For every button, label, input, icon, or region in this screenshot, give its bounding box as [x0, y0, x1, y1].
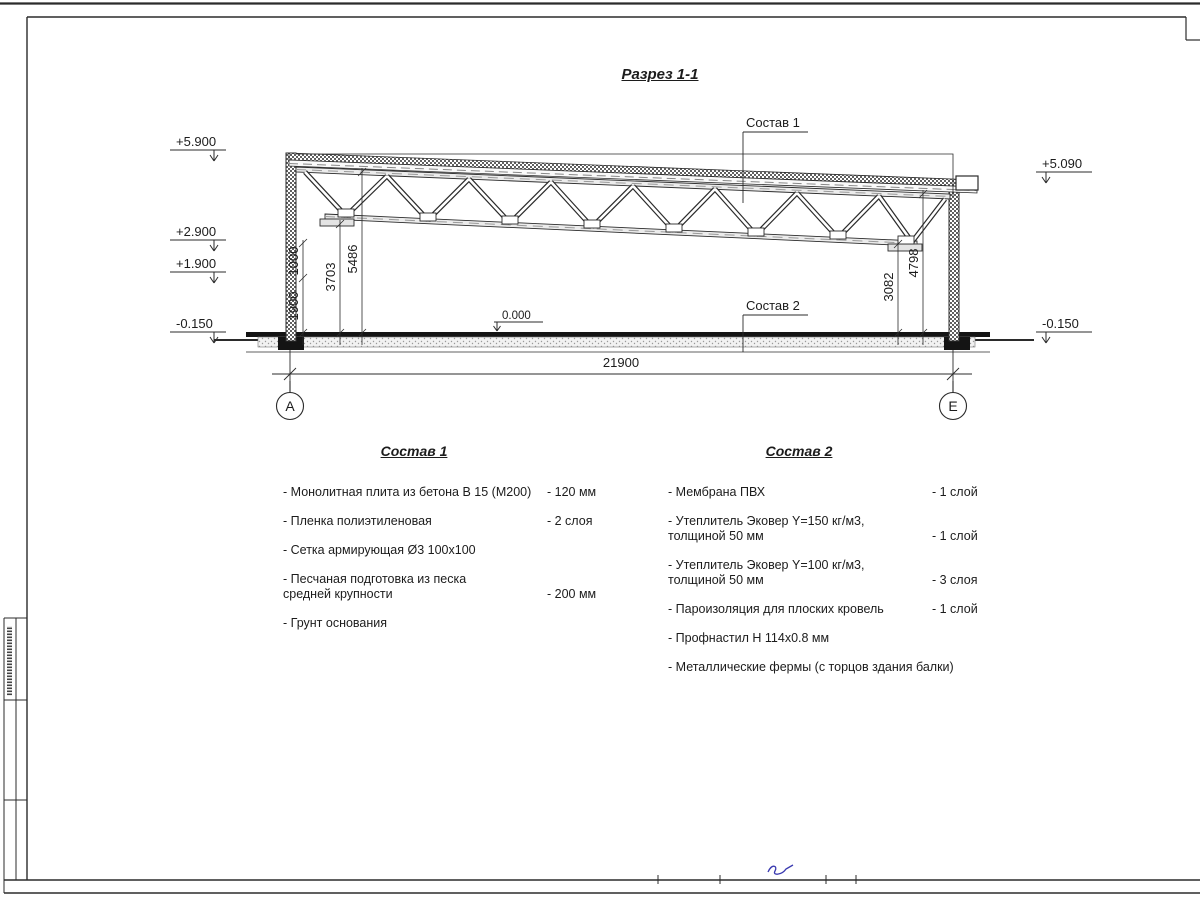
svg-text:+5.090: +5.090	[1042, 156, 1082, 171]
legend2-item: - Пароизоляция для плоских кровель - 1 с…	[668, 602, 998, 617]
elevation-5090: +5.090	[1036, 156, 1092, 183]
legend2-item: - Профнастил Н 114х0.8 мм	[668, 631, 998, 646]
right-wall	[949, 181, 959, 341]
axis-markers: А Е	[277, 381, 967, 420]
left-stamp-strip	[4, 618, 27, 893]
elevation-1900: +1.900	[170, 256, 226, 283]
span-dimension: 21900	[272, 350, 972, 381]
legend1-item: - Сетка армирующая Ø3 100х100	[283, 543, 613, 558]
legend2-item: - Утеплитель Эковер Y=100 кг/м3, толщино…	[668, 558, 998, 588]
roof-edge-plate	[956, 176, 978, 190]
legend1-item: - Грунт основания	[283, 616, 613, 631]
stamp-vertical-text-smudge	[7, 626, 14, 696]
floor-slab	[214, 332, 1034, 352]
elevation-minus-0150-right: -0.150	[1036, 316, 1092, 343]
vertical-dimensions: 1000 1900 3703 5486 3082 4798	[286, 168, 927, 345]
axis-label-e: Е	[948, 398, 957, 414]
elevation-5900: +5.900	[170, 134, 226, 161]
legend2-item: - Мембрана ПВХ - 1 слой	[668, 485, 998, 500]
legend-sostav-1: Состав 1 - Монолитная плита из бетона В …	[283, 443, 613, 645]
dim-21900: 21900	[603, 355, 639, 370]
legend-sostav-2: Состав 2 - Мембрана ПВХ - 1 слой - Утепл…	[668, 443, 998, 689]
elevation-2900: +2.900	[170, 224, 226, 251]
truss-left-seat	[320, 219, 354, 226]
dim-3703: 3703	[323, 263, 338, 292]
legend2-item: - Утеплитель Эковер Y=150 кг/м3, толщино…	[668, 514, 998, 544]
elevation-0000-floor: 0.000	[494, 310, 544, 331]
drawing-title: Разрез 1-1	[540, 66, 780, 83]
legend2-item: - Металлические фермы (с торцов здания б…	[668, 660, 998, 675]
svg-text:Состав 2: Состав 2	[746, 298, 800, 313]
dim-3082: 3082	[881, 273, 896, 302]
svg-text:-0.150: -0.150	[176, 316, 213, 331]
dim-4798: 4798	[906, 249, 921, 278]
dim-1900: 1900	[286, 292, 301, 321]
axis-label-a: А	[285, 398, 295, 414]
svg-text:Состав 1: Состав 1	[746, 115, 800, 130]
svg-text:0.000: 0.000	[502, 310, 531, 322]
legend1-item: - Монолитная плита из бетона В 15 (М200)…	[283, 485, 613, 500]
elevation-minus-0150-left: -0.150	[170, 316, 226, 343]
legend1-item: - Песчаная подготовка из песка средней к…	[283, 572, 613, 602]
svg-text:+5.900: +5.900	[176, 134, 216, 149]
legend1-item: - Пленка полиэтиленовая - 2 слоя	[283, 514, 613, 529]
legend1-heading: Состав 1	[283, 443, 545, 459]
blue-signature-scribble	[768, 865, 793, 874]
svg-text:-0.150: -0.150	[1042, 316, 1079, 331]
svg-text:+1.900: +1.900	[176, 256, 216, 271]
dim-5486: 5486	[345, 245, 360, 274]
dim-1000: 1000	[286, 247, 301, 276]
svg-text:+2.900: +2.900	[176, 224, 216, 239]
legend2-heading: Состав 2	[668, 443, 930, 459]
